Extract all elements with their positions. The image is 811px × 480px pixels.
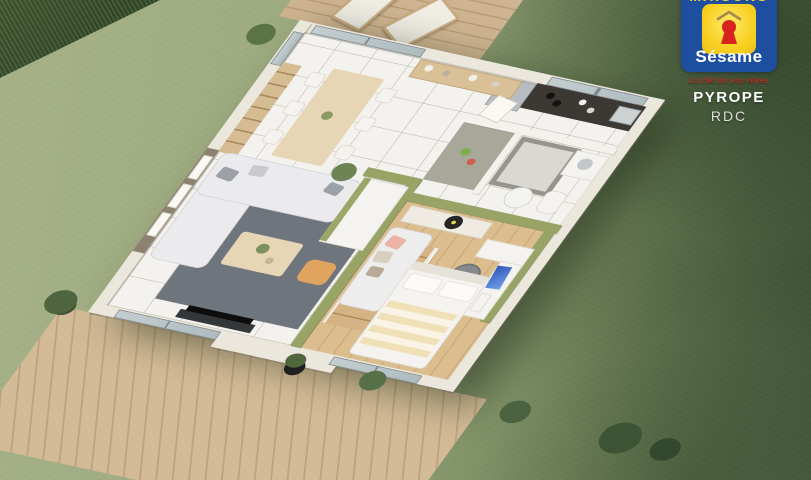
floor-plan-render: MAISONS Sésame La clef de vos rêves PYRO… [0, 0, 811, 480]
plan-name-label: PYROPE [681, 89, 777, 106]
logo-tagline: La clef de vos rêves [673, 75, 785, 85]
keyhole-house-icon [712, 10, 746, 48]
logo-brand-name: Sésame [681, 47, 777, 67]
floor-level-label: RDC [681, 108, 777, 124]
builder-logo: MAISONS Sésame La clef de vos rêves PYRO… [681, 0, 777, 72]
logo-blue-box: MAISONS Sésame [681, 0, 777, 72]
